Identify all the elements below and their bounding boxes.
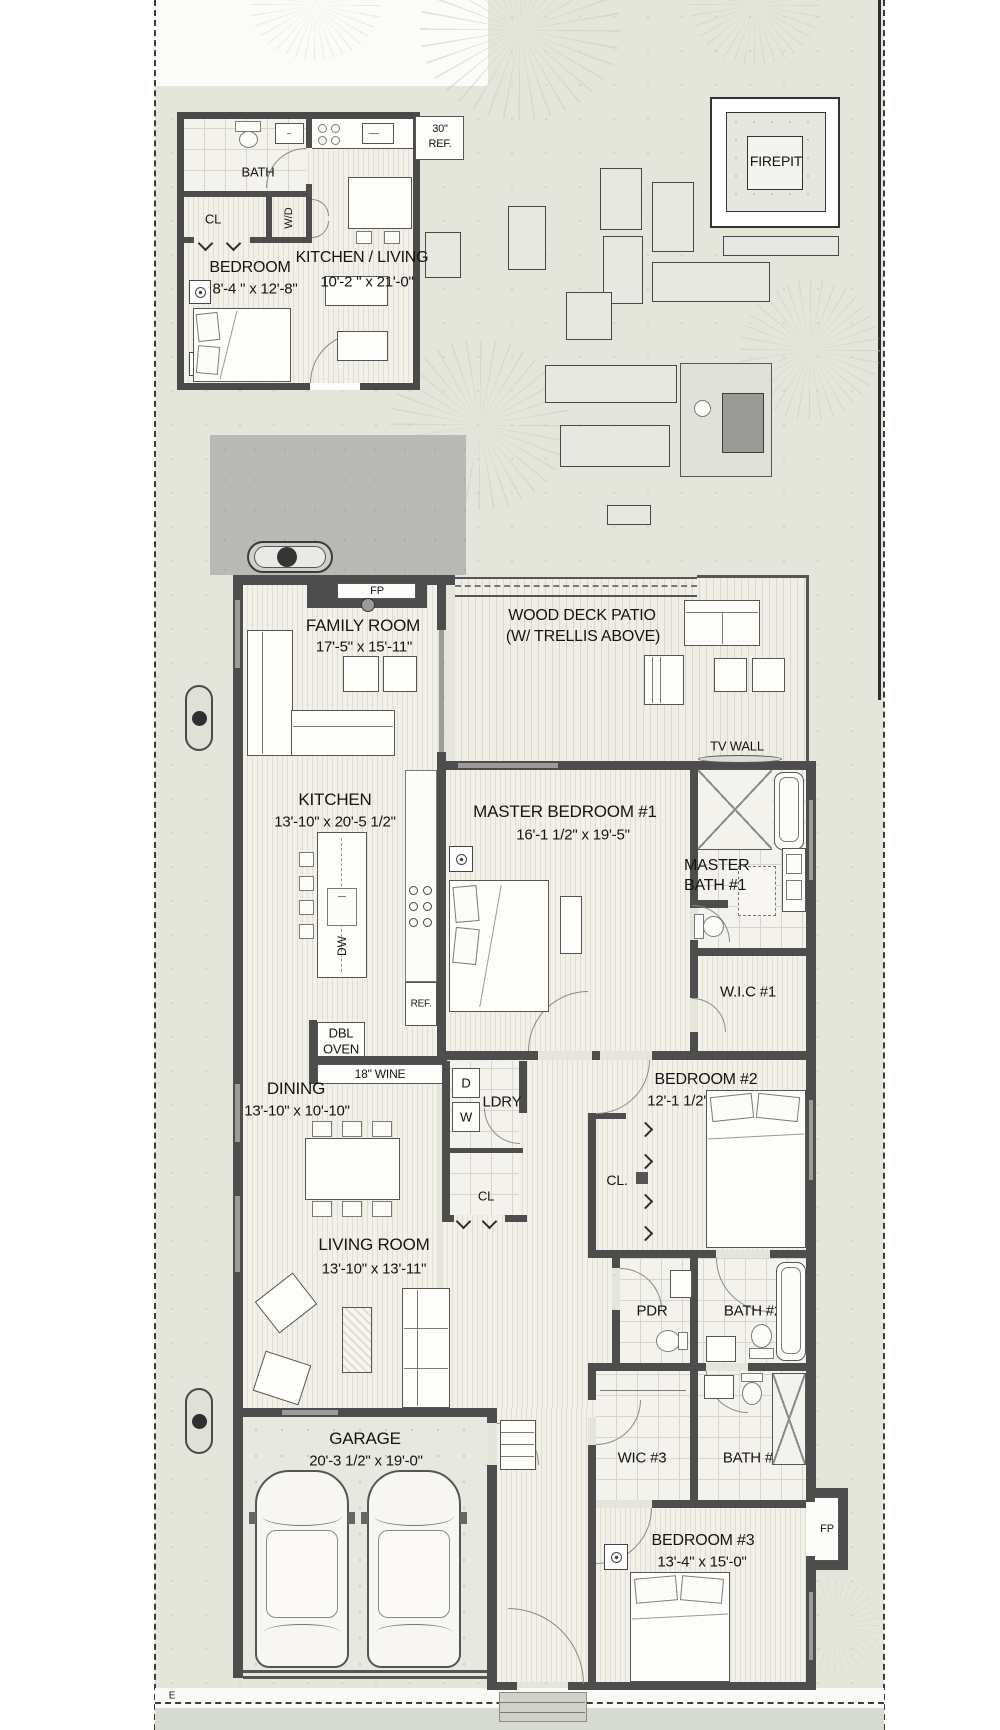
adu-bath-label: BATH	[242, 165, 275, 180]
window	[809, 800, 813, 880]
floor-plan: E FIREPIT	[0, 0, 1000, 1730]
burner	[409, 902, 418, 911]
burner	[423, 918, 432, 927]
stepping-stone	[652, 262, 770, 302]
car-roof	[266, 1530, 338, 1618]
adu-kitchen-living-label: KITCHEN / LIVING	[296, 249, 429, 267]
pillow	[452, 885, 479, 923]
stepping-stone	[508, 206, 546, 270]
dining-chair	[312, 1121, 332, 1137]
burner	[409, 886, 418, 895]
master-bedroom-label: MASTER BEDROOM #1	[473, 802, 657, 822]
rug	[342, 1307, 372, 1373]
pillow	[710, 1093, 754, 1122]
car-mirror	[460, 1512, 467, 1524]
garage-door	[243, 1670, 487, 1673]
dining-table	[305, 1138, 400, 1200]
dining-chair	[372, 1201, 392, 1217]
grill-sink	[694, 400, 711, 417]
bench	[560, 896, 582, 954]
adu-bedroom-dims: 8'-4 " x 12'-8"	[212, 281, 297, 298]
toilet-bowl	[239, 131, 258, 148]
car-roof	[378, 1530, 450, 1618]
switch-icon	[449, 846, 473, 872]
adu-wd-label: W/D	[283, 207, 295, 228]
toilet-tank	[678, 1332, 688, 1350]
stepping-stone	[723, 236, 839, 256]
master-bath-label1: MASTER	[684, 857, 749, 875]
family-fp-label: FP	[370, 585, 384, 597]
bath2-sink	[706, 1336, 736, 1362]
toilet-bowl	[751, 1324, 772, 1348]
closet-rod	[636, 1172, 648, 1184]
coffee-table	[383, 656, 417, 692]
pillow	[756, 1093, 800, 1122]
bathtub-inner	[779, 777, 799, 842]
window	[235, 1196, 240, 1272]
wic3-label: WIC #3	[618, 1450, 667, 1467]
car-mirror	[348, 1512, 355, 1524]
grill	[722, 393, 764, 453]
pillow	[680, 1575, 724, 1604]
dining-chair	[372, 1121, 392, 1137]
toilet-bowl	[656, 1330, 680, 1352]
pillow	[452, 927, 480, 965]
sink	[786, 854, 802, 874]
living-room-dims: 13'-10" x 13'-11"	[322, 1261, 426, 1278]
window	[809, 1592, 813, 1660]
stepping-stone	[560, 425, 670, 467]
kitchen-counter	[405, 770, 437, 982]
adu-closet-label: CL	[205, 212, 221, 227]
adu-coffee-table	[337, 331, 388, 361]
coffee-table	[343, 656, 379, 692]
dining-chair	[342, 1201, 362, 1217]
pdr-sink	[670, 1270, 692, 1298]
dining-label: DINING	[267, 1079, 325, 1099]
dbl-oven-label1: DBL	[329, 1026, 354, 1041]
washer-label: W	[460, 1110, 472, 1125]
bath3-shower	[772, 1373, 806, 1465]
dining-chair	[342, 1121, 362, 1137]
garage-dims: 20'-3 1/2" x 19'-0"	[309, 1453, 422, 1470]
sliding-door	[458, 763, 558, 768]
hall-closet-label: CL	[478, 1189, 494, 1204]
living-floor2	[443, 1250, 612, 1417]
bedroom3-fp-label: FP	[820, 1523, 834, 1535]
cooktop-burner	[318, 124, 327, 133]
master-shower	[698, 770, 772, 850]
dining-dims: 13'-10" x 10'-10"	[244, 1103, 350, 1120]
car-rear-window	[376, 1624, 452, 1640]
stepping-stone	[600, 168, 642, 230]
wine-label: 18" WINE	[355, 1067, 406, 1081]
car-mirror	[249, 1512, 256, 1524]
bar-stool	[299, 852, 314, 867]
sink	[786, 880, 802, 900]
pillow	[196, 345, 220, 375]
sectional-sofa	[247, 630, 293, 756]
stepping-stone	[652, 182, 694, 252]
family-room-label: FAMILY ROOM	[306, 616, 420, 636]
toilet-tank	[749, 1348, 774, 1359]
bedroom3-dims: 13'-4" x 15'-0"	[657, 1554, 746, 1571]
window	[439, 630, 444, 752]
closet-rod	[600, 1390, 686, 1391]
living-room-label: LIVING ROOM	[318, 1235, 429, 1255]
cooktop-burner	[331, 136, 340, 145]
toilet-bowl	[703, 916, 724, 937]
adu-kitchen-living-dims: 10'-2 " x 21'-0"	[320, 274, 413, 291]
survey-marker: E	[169, 1691, 175, 1702]
bbq-kettle-icon	[277, 547, 297, 567]
burner	[423, 902, 432, 911]
stepping-stone	[566, 292, 612, 340]
master-bedroom-dims: 16'-1 1/2" x 19'-5"	[516, 827, 629, 844]
pdr-label: PDR	[636, 1303, 667, 1320]
fridge-label: REF.	[411, 999, 432, 1010]
bar-stool	[299, 924, 314, 939]
property-line-right	[883, 0, 885, 1730]
stepping-stone	[425, 232, 461, 278]
bedroom2-closet-label: CL.	[606, 1172, 627, 1188]
window	[282, 1410, 338, 1415]
stepping-stone	[545, 365, 677, 403]
switch-icon	[189, 280, 211, 304]
car-windshield	[374, 1506, 454, 1526]
dryer-label: D	[461, 1076, 470, 1091]
bar-stool	[299, 900, 314, 915]
switch-icon	[604, 1544, 628, 1570]
garage-label: GARAGE	[329, 1429, 401, 1449]
sofa	[402, 1288, 450, 1408]
property-line-left	[154, 0, 156, 1730]
tv-wall	[698, 755, 782, 763]
outdoor-chair	[752, 658, 785, 692]
yard-feature-knob	[192, 711, 207, 726]
pillow	[634, 1575, 678, 1604]
entry-steps	[500, 1420, 536, 1470]
cooktop-burner	[318, 136, 327, 145]
window	[235, 600, 240, 668]
dining-chair	[312, 1201, 332, 1217]
bath2-label: BATH #2	[724, 1303, 782, 1320]
dbl-oven-label2: OVEN	[323, 1042, 359, 1057]
adu-island	[348, 177, 412, 229]
burner	[423, 886, 432, 895]
toilet-bowl	[742, 1382, 762, 1405]
window	[809, 1100, 813, 1180]
dishwasher-label: DW	[335, 936, 349, 956]
adu-stool	[356, 231, 372, 244]
deck-label2: (W/ TRELLIS ABOVE)	[506, 628, 660, 646]
bath3-sink	[704, 1375, 734, 1399]
rear-stoop	[499, 1692, 587, 1722]
wic1-label: W.I.C #1	[720, 984, 776, 1001]
family-room-dims: 17'-5" x 15'-11"	[316, 639, 412, 656]
yard-feature-knob	[192, 1414, 207, 1429]
adu-bedroom-label: BEDROOM	[209, 259, 290, 277]
stepping-stone	[607, 505, 651, 525]
deck-label1: WOOD DECK PATIO	[508, 607, 656, 625]
cooktop-burner	[331, 124, 340, 133]
toilet-tank	[741, 1373, 763, 1382]
kitchen-label: KITCHEN	[298, 790, 371, 810]
firepit-label: FIREPIT	[750, 153, 802, 169]
car-windshield	[262, 1506, 342, 1526]
bedroom3-label: BEDROOM #3	[652, 1532, 755, 1550]
outdoor-chair	[714, 658, 747, 692]
car-rear-window	[264, 1624, 340, 1640]
island-sink	[327, 888, 357, 926]
kitchen-dims: 13'-10" x 20'-5 1/2"	[274, 814, 396, 831]
bedroom2-label: BEDROOM #2	[655, 1071, 758, 1089]
adu-fridge-label2: REF.	[428, 138, 451, 150]
car-mirror	[361, 1512, 368, 1524]
lounge-chair	[644, 655, 684, 705]
master-bath-label2: BATH #1	[684, 877, 746, 895]
pillow	[196, 312, 221, 342]
tv-wall-label: TV WALL	[710, 739, 764, 754]
wic1-floor	[698, 956, 806, 1051]
adu-fridge-label: 30"	[432, 123, 448, 135]
burner	[409, 918, 418, 927]
adu-stool	[384, 231, 400, 244]
bar-stool	[299, 876, 314, 891]
window	[235, 1084, 240, 1142]
sectional-sofa	[291, 710, 395, 756]
fp-flue-icon	[361, 598, 375, 612]
